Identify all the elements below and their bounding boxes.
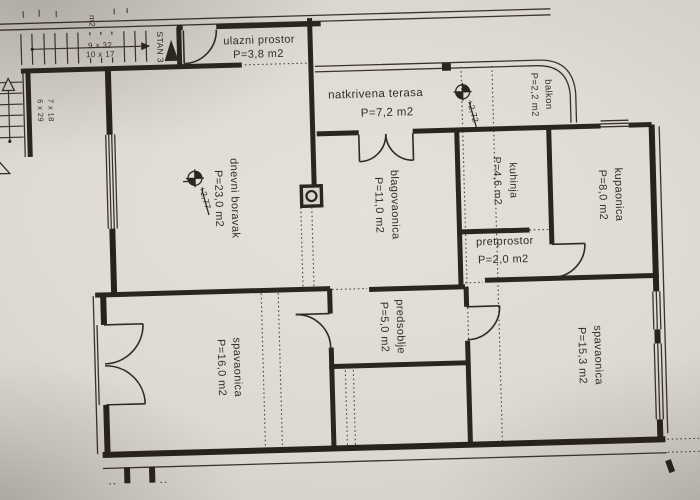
room-label-pretprostor: pretprostor [476, 235, 534, 249]
room-label-ulazni-prostor: ulazni prostor [223, 33, 295, 47]
room-area-spavaonica-west: P=16,0 m2 [214, 339, 228, 396]
room-label-kupaonica: kupaonica [612, 167, 626, 222]
room-label-natkrivena-terasa: natkrivena terasa [328, 87, 424, 102]
terrace-post [442, 63, 451, 71]
south-wall-stub [127, 467, 152, 484]
stairs-top-label-2: 10 x 17 [86, 49, 115, 59]
room-area-pretprostor: P=2,0 m2 [478, 253, 529, 266]
stairs-up-arrow [2, 78, 14, 90]
landing-triangle [0, 160, 10, 173]
stairs-top [21, 31, 151, 66]
terrace-french-door [359, 133, 414, 161]
room-area-natkrivena-terasa: P=7,2 m2 [361, 106, 414, 119]
room-label-dnevni-boravak: dnevni boravak [227, 158, 241, 239]
doors [96, 20, 589, 405]
wall-south [103, 439, 666, 455]
room-area-kupaonica: P=8,0 m2 [596, 169, 609, 220]
room-label-balkon: balkon [542, 79, 554, 110]
wall-west [103, 294, 108, 456]
entry-door [183, 30, 217, 64]
bathroom-window [600, 120, 628, 127]
level-marker-terrace: +2,72 [453, 82, 481, 129]
floor-plan-photo: +2,77 +2,72 m2 ulazni prostor P=3,8 m2 n… [0, 0, 700, 500]
living-room-window [106, 135, 118, 229]
interior-walls [20, 8, 664, 457]
room-label-spavaonica-west: spavaonica [230, 337, 244, 397]
room-area-blagovaonica: P=11,0 m2 [372, 177, 386, 234]
stairs-left-label-1: 6 x 29 [36, 99, 46, 122]
room-label-spavaonica-east: spavaonica [591, 325, 605, 385]
room-area-spavaonica-east: P=15,3 m2 [575, 327, 589, 384]
level-value-living: +2,77 [197, 185, 213, 210]
room-area-ulazni-prostor: P=3,8 m2 [233, 48, 284, 61]
room-label-predsoblje: predsoblje [393, 299, 407, 354]
stairs-left [0, 78, 25, 174]
hall-to-bedroom-west-door [296, 314, 331, 349]
edge-text-fragments: m2 [23, 7, 127, 29]
corner-tick [668, 460, 672, 472]
level-value-terrace: +2,72 [465, 99, 481, 124]
room-label-blagovaonica: blagovaonica [388, 170, 402, 240]
hall-to-bedroom-east-door [467, 306, 501, 340]
stairs-left-label-2: 7 x 18 [46, 99, 56, 122]
level-marker-living: +2,77 [183, 169, 214, 216]
floor-plan-drawing: +2,77 +2,72 m2 ulazni prostor P=3,8 m2 n… [0, 0, 700, 500]
room-area-kuhinja: P=4,6 m2 [490, 156, 503, 205]
room-area-balkon: P=2,2 m2 [528, 73, 540, 117]
unit-label: STAN 3 [155, 31, 166, 63]
east-wall-face [659, 126, 668, 433]
west-wall-face [93, 296, 97, 454]
edge-fragment-m2: m2 [87, 15, 96, 27]
structural-column [301, 186, 322, 207]
bedroom-east-window-1 [653, 291, 661, 329]
bathroom-door [552, 243, 586, 277]
bedroom-east-window-2 [654, 343, 663, 419]
bedroom-west-balcony-door [104, 324, 145, 405]
room-area-dnevni-boravak: P=23,0 m2 [212, 170, 226, 227]
room-label-kuhinja: kuhinja [507, 162, 520, 198]
room-area-predsoblje: P=5,0 m2 [377, 302, 390, 353]
